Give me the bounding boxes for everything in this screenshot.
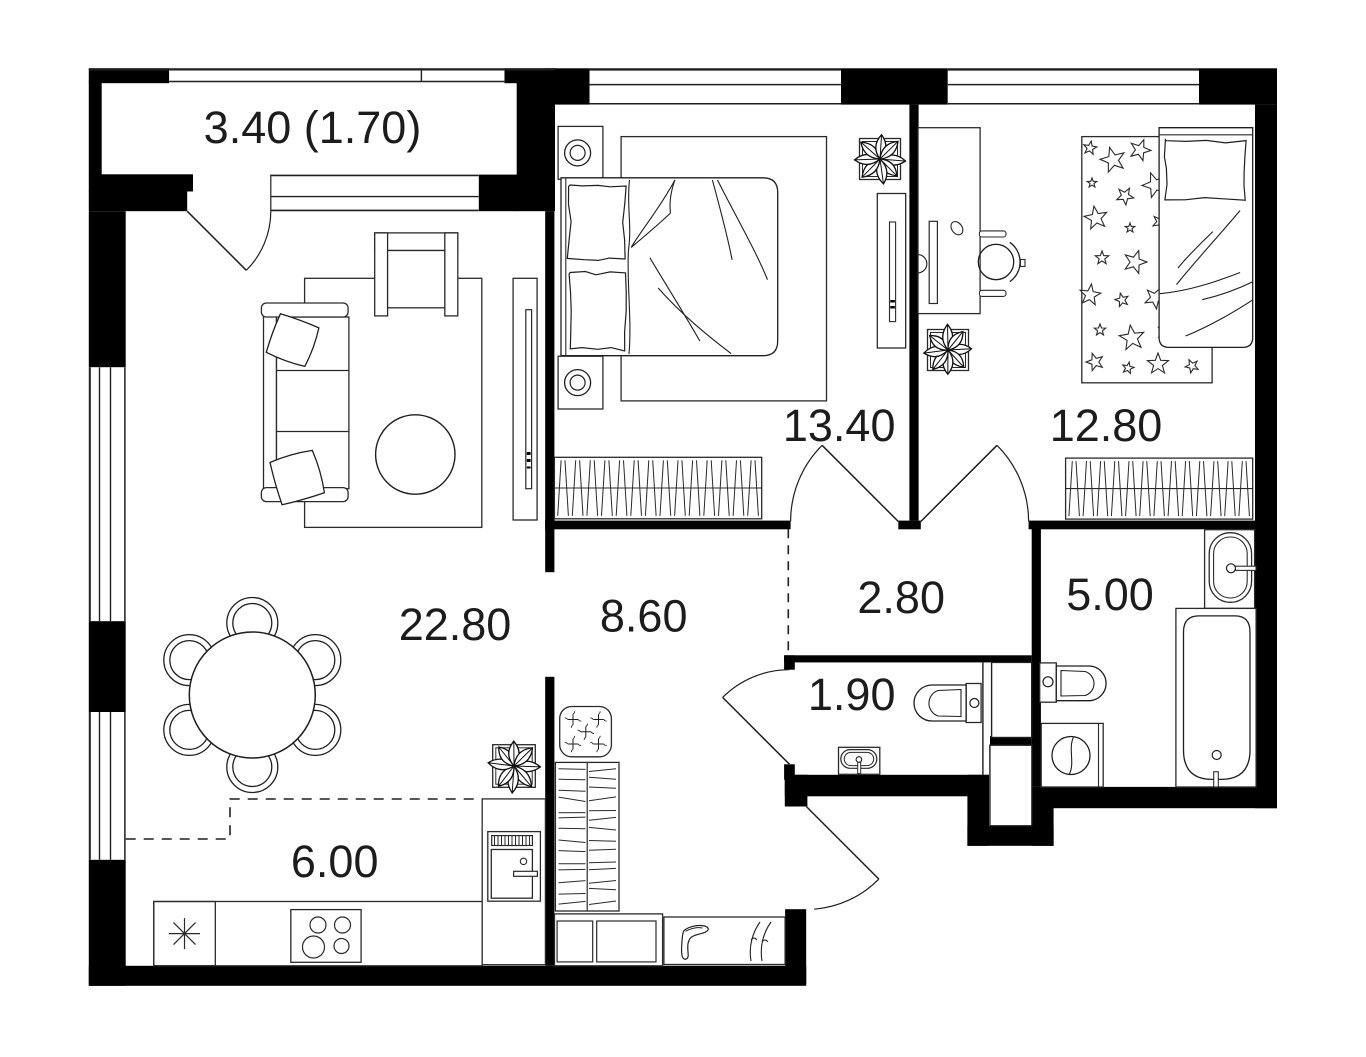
svg-text:5.00: 5.00 (1066, 569, 1154, 620)
svg-text:2.80: 2.80 (857, 572, 945, 623)
svg-text:8.60: 8.60 (600, 591, 688, 642)
svg-text:1.90: 1.90 (808, 669, 896, 720)
svg-text:12.80: 12.80 (1050, 400, 1163, 451)
svg-text:6.00: 6.00 (291, 836, 379, 887)
svg-text:13.40: 13.40 (783, 400, 896, 451)
svg-text:22.80: 22.80 (399, 599, 512, 650)
svg-text:3.40 (1.70): 3.40 (1.70) (204, 102, 422, 153)
